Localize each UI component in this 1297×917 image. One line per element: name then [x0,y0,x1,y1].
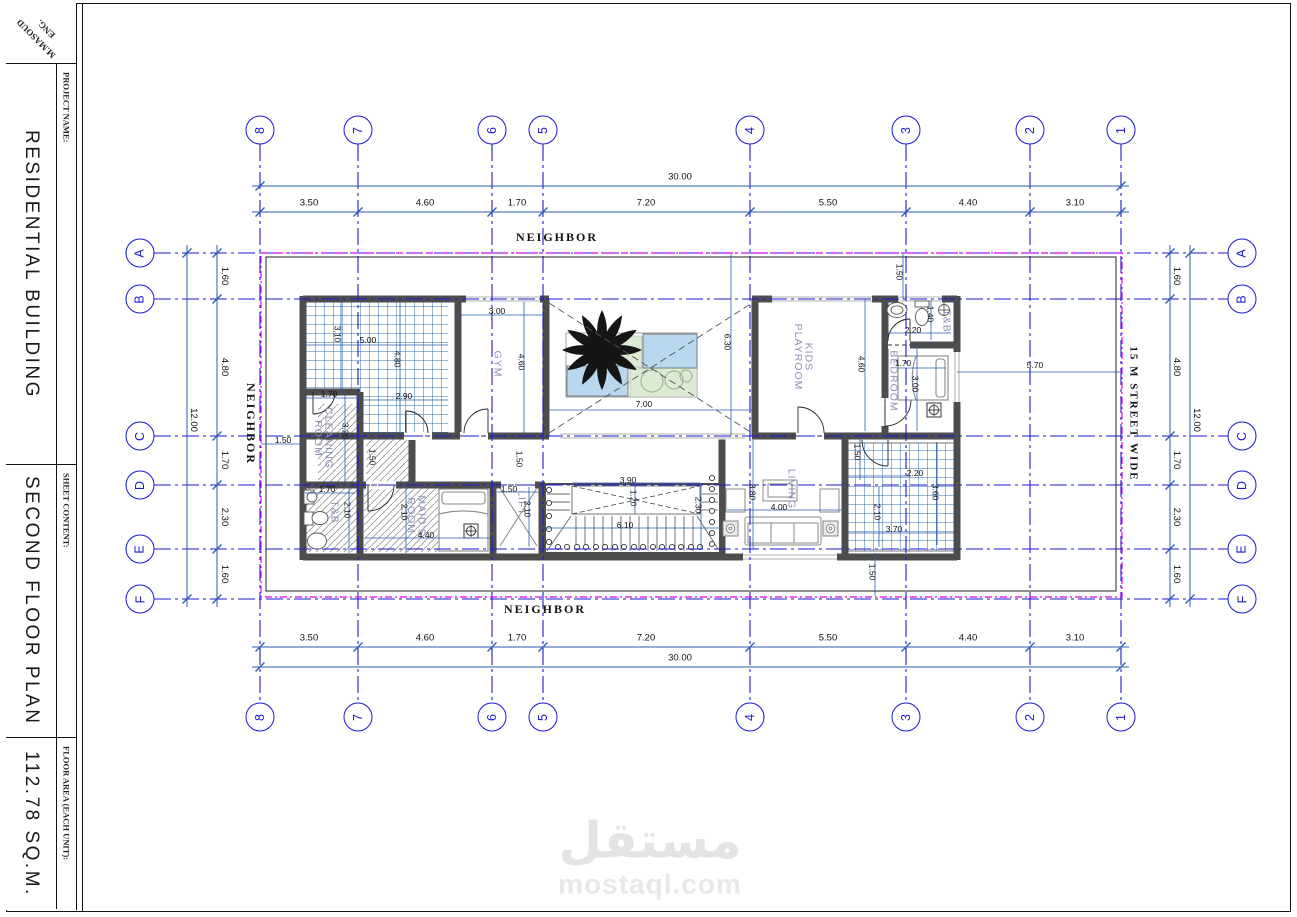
dim-label: 2.10 [343,500,352,521]
dim-label: 4.00 [769,503,790,512]
dim-label: 3.10 [1064,198,1087,208]
dim-label: 5.50 [817,633,840,643]
dim-label: 7.00 [634,400,655,409]
dim-label: 2.30 [694,495,703,516]
dim-label: 1.50 [868,562,877,583]
grid-bubble-row: E [126,535,155,564]
dim-label: 3.50 [298,633,321,643]
grid-bubble-col: 3 [892,703,921,732]
grid-bubble-col: 2 [1016,703,1045,732]
grid-bubble-col: 7 [344,703,373,732]
room-label-cleaning: CLEANINGROOM [313,407,334,469]
dim-label: 4.60 [414,633,437,643]
grid-bubble-col: 1 [1107,116,1136,145]
dim-label: 2.20 [903,326,924,335]
grid-bubble-col: 1 [1107,703,1136,732]
grid-bubble-row: A [1228,239,1257,268]
dim-label: 4.40 [416,531,437,540]
grid-bubble-col: 4 [736,703,765,732]
grid-bubble-col: 8 [246,703,275,732]
dim-label: 2.10 [523,499,532,520]
dim-label: 6.10 [615,521,636,530]
floor-area-label: FLOOR AREA (EACH UNIT): [62,746,72,909]
dim-label: 3.80 [748,482,757,503]
sheet-content-label: SHEET CONTENT: [62,473,72,737]
dim-label: 3.70 [884,525,905,534]
grid-bubble-row: F [1228,585,1257,614]
dim-label: 3.00 [911,374,920,395]
room-label-toilet-bottom: T&B [329,500,340,523]
grid-bubble-row: C [1228,422,1257,451]
dim-label: 7.20 [635,633,658,643]
dim-label: 7.20 [635,198,658,208]
grid-bubble-row: C [126,422,155,451]
grid-bubble-row: B [1228,285,1257,314]
engineer-stamp: M.MASOUD ENG. [6,3,76,64]
dim-label: 5.50 [817,198,840,208]
grid-bubble-col: 4 [736,116,765,145]
grid-bubble-col: 3 [892,116,921,145]
dim-label: 6.30 [723,332,732,353]
dim-label: 5.70 [1025,361,1046,370]
dim-label: 1.50 [853,442,862,463]
neighbor-label-left: NEIGHBOR [245,383,257,465]
sheet-border [6,3,1291,912]
dim-label: 4.80 [393,349,402,370]
grid-bubble-row: A [126,239,155,268]
project-name-value: RESIDENTIAL BUILDING [20,130,42,399]
dim-label: 2.10 [400,502,409,523]
dim-label: 4.40 [957,633,980,643]
room-label-kids-playroom: KIDSPLAYROOM [793,324,814,391]
drawing-sheet: M.MASOUD ENG. RESIDENTIAL BUILDING PROJE… [0,0,1297,917]
dim-label: 1.70 [219,449,229,472]
grid-bubble-col: 6 [478,703,507,732]
project-name-label: PROJECT NAME: [62,72,72,464]
dim-label: 1.70 [319,390,340,399]
floor-area-value: 112.78 SQ.M. [20,751,42,897]
dim-label: 4.60 [517,352,526,373]
dim-label: 1.70 [506,633,529,643]
dim-label: 1.60 [1171,265,1181,288]
dim-label: 2.30 [1171,506,1181,529]
grid-bubble-col: 6 [478,116,507,145]
dim-label: 1.50 [368,447,377,468]
dim-label: 1.50 [499,485,520,494]
grid-bubble-row: D [126,471,155,500]
dim-label: 1.40 [926,304,935,325]
grid-bubble-col: 5 [529,116,558,145]
grid-bubble-col: 2 [1016,116,1045,145]
grid-bubble-col: 8 [246,116,275,145]
grid-bubble-col: 5 [529,703,558,732]
dim-total-label: 12.00 [188,406,198,434]
room-label-toilet-top: T&B [941,309,952,332]
dim-label: 1.70 [506,198,529,208]
title-block: M.MASOUD ENG. RESIDENTIAL BUILDING PROJE… [6,3,77,910]
dim-total-label: 12.00 [1191,406,1201,434]
sheet-content-value: SECOND FLOOR PLAN [20,476,42,725]
dim-label: 1.50 [895,262,904,283]
dim-label: 1.60 [1171,563,1181,586]
street-label: 15 M STREET WIDE [1128,346,1139,481]
dim-label: 4.60 [857,354,866,375]
dim-total-label: 30.00 [666,653,694,663]
grid-bubble-row: D [1228,471,1257,500]
dim-label: 1.50 [515,449,524,470]
dim-label: 3.10 [333,324,342,345]
dim-label: 3.60 [931,482,940,503]
dim-label: 1.70 [1171,449,1181,472]
dim-label: 2.20 [905,469,926,478]
dim-label: 1.50 [273,436,294,445]
grid-bubble-col: 7 [344,116,373,145]
dim-label: 1.60 [219,265,229,288]
dim-label: 3.90 [618,476,639,485]
dim-label: 5.00 [358,336,379,345]
dim-label: 3.10 [1064,633,1087,643]
dim-label: 1.70 [893,359,914,368]
dim-total-label: 30.00 [666,172,694,182]
dim-label: 4.60 [414,198,437,208]
dim-label: 2.30 [219,506,229,529]
dim-label: 3.00 [487,307,508,316]
grid-bubble-row: E [1228,535,1257,564]
grid-bubble-row: F [126,585,155,614]
grid-bubble-row: B [126,285,155,314]
neighbor-label-top: NEIGHBOR [516,231,598,243]
dim-label: 3.20 [341,421,350,442]
dim-label: 3.50 [298,198,321,208]
dim-label: 1.70 [317,485,338,494]
dim-label: 2.10 [873,502,882,523]
dim-label: 4.40 [957,198,980,208]
neighbor-label-bottom: NEIGHBOR [504,603,586,615]
dim-label: 1.20 [629,488,638,509]
room-label-gym: GYM [492,351,503,378]
dim-label: 2.90 [394,392,415,401]
titleblock-divider [82,3,83,912]
dim-label: 4.80 [219,356,229,379]
dim-label: 4.80 [1171,356,1181,379]
dim-label: 1.60 [219,563,229,586]
